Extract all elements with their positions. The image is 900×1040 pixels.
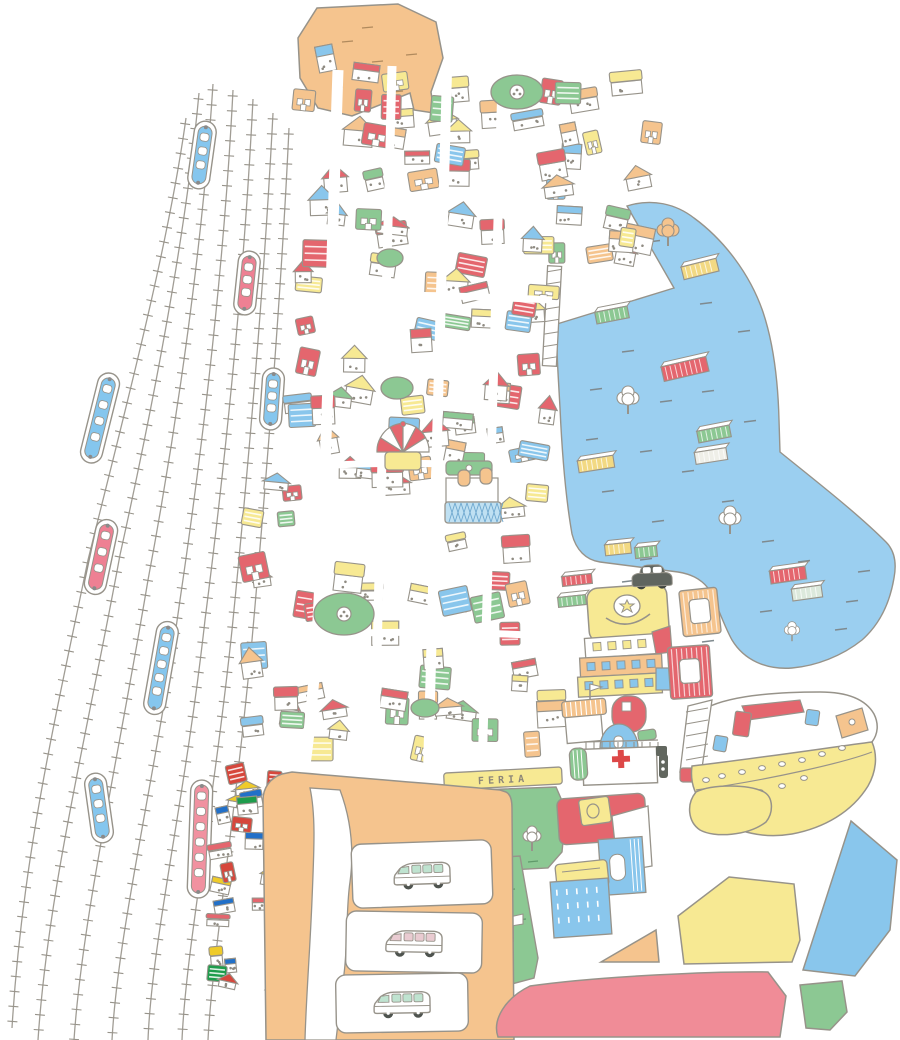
tie [252, 358, 262, 359]
building [525, 484, 548, 503]
tie [223, 419, 233, 420]
container [557, 590, 590, 607]
building [327, 719, 351, 741]
porthole [779, 784, 786, 789]
tie [177, 232, 187, 234]
tie [264, 179, 274, 180]
tie [205, 1015, 215, 1016]
tie [208, 553, 218, 554]
tie [38, 985, 48, 986]
tie [244, 448, 254, 449]
tie [248, 403, 258, 404]
tie [260, 253, 270, 254]
tie [175, 602, 185, 603]
tie [247, 418, 257, 419]
tie [220, 215, 230, 216]
tie [186, 731, 196, 732]
tie [226, 389, 236, 390]
tie [268, 119, 278, 120]
tie [235, 552, 245, 553]
tie [215, 493, 225, 494]
tie [192, 687, 202, 688]
building [410, 328, 432, 352]
tie [144, 1028, 154, 1029]
market-annex [550, 878, 612, 938]
tie [146, 998, 156, 999]
train-blue [259, 367, 285, 430]
tie [201, 612, 211, 613]
tie [7, 1021, 17, 1022]
tie [240, 224, 250, 225]
tie [14, 946, 24, 947]
tie [72, 1009, 82, 1010]
tie [245, 150, 255, 151]
tie [208, 985, 218, 986]
van-bay [336, 973, 469, 1033]
tie [195, 454, 205, 455]
tie [156, 924, 166, 925]
tie [248, 105, 258, 106]
tie [241, 702, 251, 703]
building [356, 209, 382, 231]
van-bay [351, 840, 493, 909]
tie [257, 283, 267, 284]
building [238, 551, 270, 582]
tie [183, 746, 193, 748]
building [442, 314, 471, 331]
train-blue [83, 772, 115, 844]
tie [265, 164, 275, 165]
tie [187, 298, 197, 299]
tie [219, 463, 229, 464]
tie [204, 379, 214, 380]
tie [247, 120, 257, 121]
tie [11, 976, 21, 977]
container [561, 569, 596, 586]
park [314, 593, 374, 635]
tie [204, 1030, 214, 1031]
tie [217, 245, 227, 246]
tie [196, 224, 206, 225]
tie [224, 657, 234, 658]
tie [248, 627, 258, 628]
tie [168, 432, 178, 434]
building [273, 686, 298, 710]
tie [203, 597, 213, 598]
tie [230, 344, 240, 345]
tie [178, 138, 188, 140]
building [213, 898, 235, 915]
green-cylinder [569, 748, 588, 781]
tie [216, 260, 226, 261]
building [237, 796, 259, 815]
tie [219, 701, 229, 702]
track [112, 90, 233, 1040]
tie [242, 195, 252, 196]
tie [249, 388, 259, 389]
tie [114, 972, 124, 973]
tie [229, 359, 239, 360]
tie [209, 335, 219, 336]
tie [221, 200, 231, 201]
zone-yellow-quad [678, 877, 800, 964]
building [555, 82, 581, 104]
tie [23, 872, 33, 873]
building [622, 163, 654, 191]
tie [191, 269, 201, 270]
tie [180, 999, 190, 1000]
tie [148, 983, 158, 984]
porthole [839, 746, 846, 751]
building [342, 345, 368, 372]
building [295, 347, 320, 377]
tie [173, 617, 183, 618]
building [240, 715, 265, 737]
tie [227, 627, 237, 628]
tie [266, 149, 276, 150]
tie [151, 953, 161, 954]
tie [178, 1029, 188, 1030]
building [501, 534, 531, 563]
tie [185, 313, 195, 314]
tie [145, 1013, 155, 1014]
building [215, 806, 231, 825]
tie [278, 239, 288, 240]
tie [179, 573, 189, 575]
tie [189, 498, 199, 499]
tie [279, 224, 289, 225]
building [405, 151, 430, 164]
zone-green-small [800, 981, 847, 1030]
tie [209, 776, 219, 777]
tie [12, 961, 22, 962]
train-blue [142, 620, 180, 716]
tie [215, 275, 225, 276]
building [352, 62, 380, 83]
track [38, 93, 199, 1040]
tie [73, 994, 83, 995]
tie [181, 203, 191, 204]
tie [34, 1030, 44, 1031]
building [206, 913, 230, 926]
tie [46, 925, 56, 926]
building [438, 585, 472, 616]
tie [153, 939, 163, 940]
tie [149, 968, 159, 969]
tie [191, 484, 201, 485]
tie [189, 284, 199, 285]
tie [194, 672, 204, 673]
porthole [819, 752, 826, 757]
tie [263, 448, 273, 449]
tie [220, 448, 230, 449]
tie [182, 984, 192, 985]
tie [15, 931, 25, 932]
tie [282, 164, 292, 165]
tie [42, 955, 52, 956]
tie [240, 493, 250, 494]
tie [256, 538, 266, 539]
tie [183, 188, 193, 189]
tie [210, 538, 220, 539]
soccer-ball-icon [510, 85, 524, 99]
tie [258, 508, 268, 509]
building [241, 508, 264, 528]
tie [250, 373, 260, 374]
tie [116, 957, 126, 958]
porthole [739, 770, 746, 775]
hospital [561, 684, 668, 785]
tie [118, 943, 128, 945]
tie [263, 209, 273, 210]
tie [8, 1006, 18, 1007]
tie [197, 439, 207, 440]
zone-pink-band [497, 972, 786, 1037]
tie [191, 909, 201, 910]
tie [222, 185, 232, 186]
building [536, 394, 559, 425]
tie [226, 126, 236, 127]
tie [225, 836, 235, 837]
building [225, 762, 247, 785]
tie [222, 672, 232, 673]
building [445, 532, 468, 552]
tie [214, 508, 224, 509]
tie [83, 920, 93, 922]
tie [264, 433, 274, 434]
power-plant [446, 461, 498, 502]
tie [193, 254, 203, 255]
tie [183, 543, 193, 544]
porthole [759, 766, 766, 771]
tie [17, 916, 27, 917]
train-blue [186, 120, 217, 190]
tie [263, 194, 273, 195]
tie [282, 179, 292, 180]
tie [236, 747, 246, 748]
tie [187, 939, 197, 940]
porthole [719, 774, 726, 779]
tie [213, 746, 223, 747]
building [332, 561, 365, 593]
tie [48, 910, 58, 912]
tie [218, 230, 228, 231]
building [292, 89, 316, 112]
tie [228, 96, 238, 97]
tie [277, 254, 287, 255]
tie [10, 991, 20, 992]
tie [267, 134, 277, 135]
tie [188, 716, 198, 717]
porthole [799, 758, 806, 763]
tie [181, 343, 191, 344]
striped-roof [561, 698, 606, 718]
tie [199, 194, 209, 195]
tie [243, 463, 253, 464]
tie [35, 1014, 45, 1015]
building [319, 697, 349, 719]
tie [246, 135, 256, 136]
building [505, 580, 531, 607]
tie [225, 404, 235, 405]
market-hall [550, 793, 652, 938]
tie [44, 940, 54, 941]
tie [19, 901, 29, 902]
building [280, 711, 305, 728]
tie [166, 447, 176, 449]
open-container [679, 587, 722, 637]
tie [241, 209, 251, 210]
bus-terminal [263, 772, 514, 1040]
tie [215, 731, 225, 732]
park [411, 699, 439, 717]
tie [197, 209, 207, 210]
building [511, 675, 527, 692]
tie [217, 716, 227, 717]
tie [224, 156, 234, 157]
tie [260, 493, 270, 494]
tie [207, 568, 217, 569]
tie [245, 433, 255, 434]
tie [205, 582, 215, 583]
tie [271, 343, 281, 344]
soccer-ball-icon [337, 607, 351, 621]
tie [270, 358, 280, 359]
tie [225, 141, 235, 142]
tie [36, 1000, 46, 1001]
tie [179, 1014, 189, 1015]
tie [283, 149, 293, 150]
tie [199, 424, 209, 425]
train-pink [187, 780, 213, 899]
tie [183, 969, 193, 970]
tie [177, 373, 187, 374]
tie [262, 463, 272, 464]
tie [213, 940, 223, 941]
building [510, 108, 545, 131]
building [442, 412, 473, 430]
tie [207, 105, 217, 106]
tie [249, 612, 259, 613]
tie [232, 329, 242, 330]
container [634, 541, 661, 559]
train-red [233, 250, 262, 316]
tie [207, 350, 217, 351]
park [377, 249, 403, 267]
tie [242, 687, 252, 688]
porthole [779, 762, 786, 767]
tie [158, 909, 168, 911]
building [231, 816, 252, 833]
tie [223, 171, 233, 172]
tie [255, 313, 265, 314]
tie [81, 934, 91, 936]
tie [280, 209, 290, 210]
tie [256, 298, 266, 299]
building [354, 89, 372, 112]
building [445, 200, 478, 230]
tie [190, 701, 200, 702]
tie [200, 409, 210, 410]
tie [217, 478, 227, 479]
tie [197, 642, 207, 643]
building [362, 168, 385, 192]
tie [202, 394, 212, 395]
tie [206, 1000, 216, 1001]
tie [108, 1032, 118, 1033]
police-station [578, 583, 672, 697]
tie [160, 894, 170, 896]
tie [232, 582, 242, 583]
tie [239, 239, 249, 240]
building [582, 130, 602, 156]
tie [77, 964, 87, 965]
tie [262, 224, 272, 225]
tie [199, 627, 209, 628]
tie [222, 433, 232, 434]
illustrated-city-map: FERIA [0, 0, 900, 1040]
tie [109, 1017, 119, 1018]
tie [181, 761, 191, 763]
tie [273, 313, 283, 314]
map-svg: FERIA [0, 0, 900, 1040]
tie [179, 776, 189, 778]
tie [208, 90, 218, 91]
building [609, 70, 643, 97]
tie [211, 761, 221, 762]
tie [187, 513, 197, 514]
street [296, 295, 552, 300]
tie [75, 979, 85, 980]
building [521, 226, 545, 253]
zone-blue-wedge [803, 821, 897, 976]
tie [181, 558, 191, 559]
building [379, 688, 408, 711]
porthole [801, 776, 808, 781]
building [641, 120, 663, 144]
tie [205, 365, 215, 366]
tie [276, 269, 286, 270]
building [407, 168, 439, 192]
tie [189, 924, 199, 925]
tie [180, 123, 190, 124]
tie [112, 987, 122, 988]
park [491, 75, 543, 109]
building [556, 206, 582, 226]
tie [261, 238, 271, 239]
tie [242, 478, 252, 479]
tie [244, 165, 254, 166]
building [245, 832, 263, 849]
tie [253, 343, 263, 344]
van-bay [345, 911, 482, 973]
tie [218, 895, 228, 896]
tie [226, 642, 236, 643]
tie [179, 358, 189, 359]
building [536, 148, 569, 181]
tie [254, 328, 264, 329]
open-container [667, 645, 713, 700]
tie [183, 328, 193, 329]
tie [213, 290, 223, 291]
building [619, 227, 637, 248]
tie [193, 469, 203, 470]
tie [177, 790, 187, 792]
tie [177, 588, 187, 589]
tie [192, 113, 202, 114]
tie [228, 374, 238, 375]
tie [79, 949, 89, 950]
